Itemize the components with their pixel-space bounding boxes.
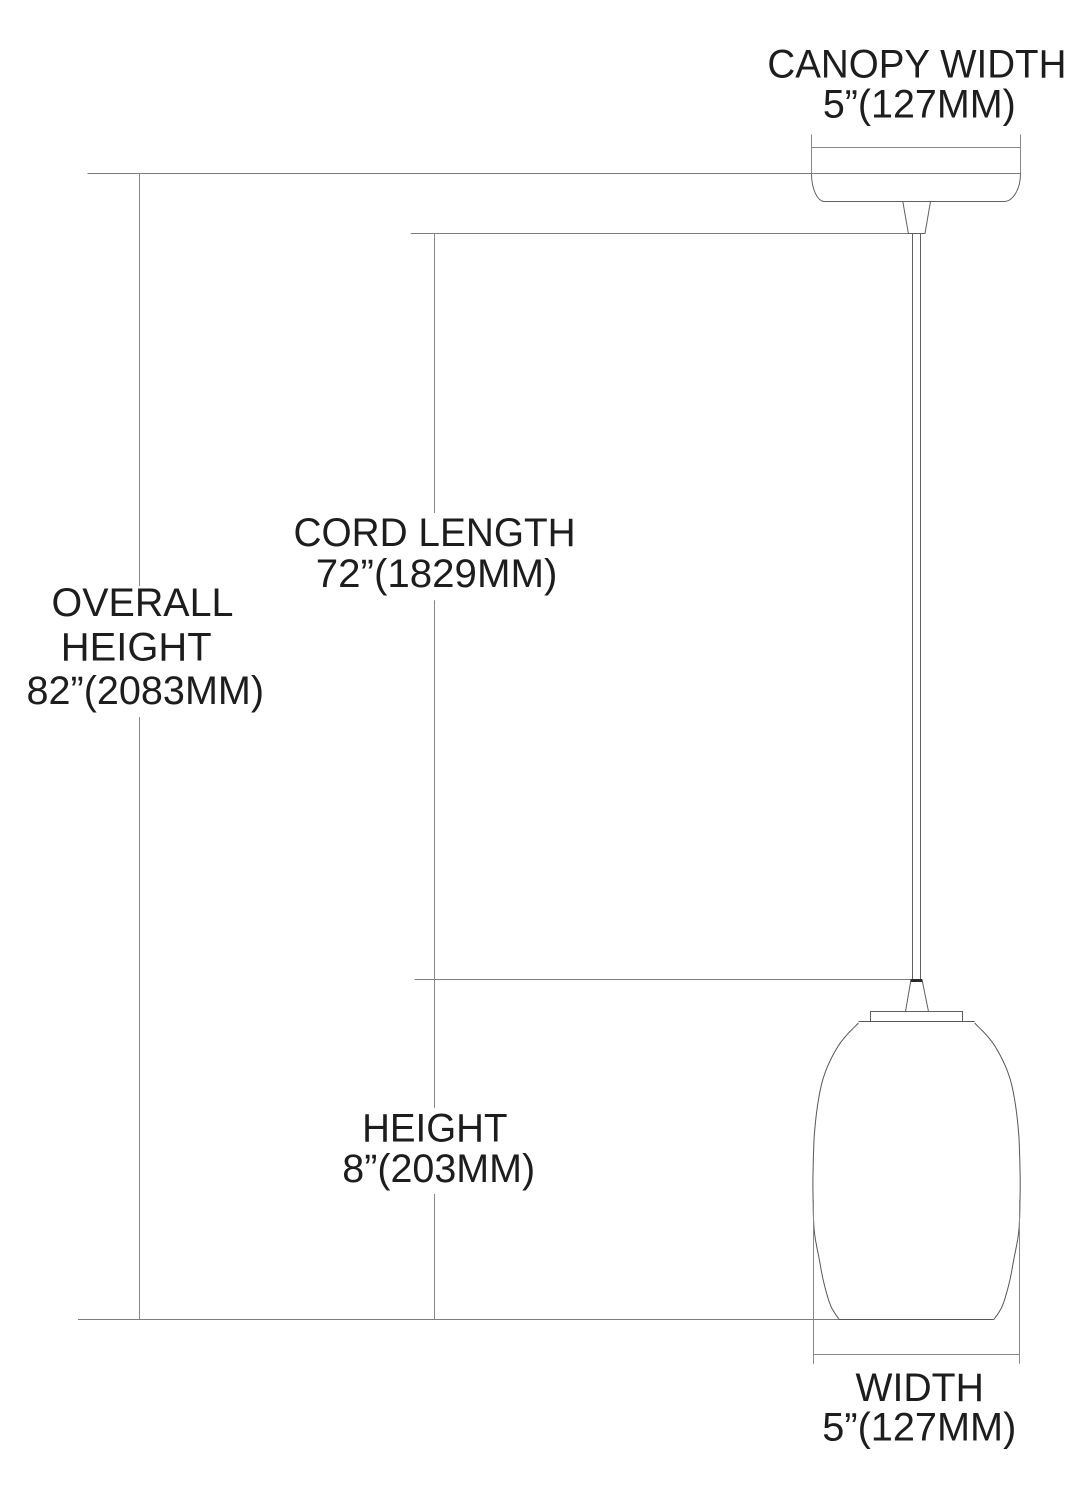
svg-text:CANOPY WIDTH: CANOPY WIDTH xyxy=(767,43,1066,87)
svg-text:5”(127MM): 5”(127MM) xyxy=(822,1406,1016,1450)
svg-text:CORD LENGTH: CORD LENGTH xyxy=(294,511,576,555)
svg-text:HEIGHT: HEIGHT xyxy=(362,1106,507,1150)
svg-text:HEIGHT: HEIGHT xyxy=(61,626,212,670)
svg-text:WIDTH: WIDTH xyxy=(856,1366,984,1410)
svg-text:OVERALL: OVERALL xyxy=(52,581,234,625)
svg-text:5”(127MM): 5”(127MM) xyxy=(823,82,1016,126)
svg-text:8”(203MM): 8”(203MM) xyxy=(342,1147,535,1191)
svg-text:72”(1829MM): 72”(1829MM) xyxy=(316,552,558,596)
svg-text:82”(2083MM): 82”(2083MM) xyxy=(27,669,265,713)
